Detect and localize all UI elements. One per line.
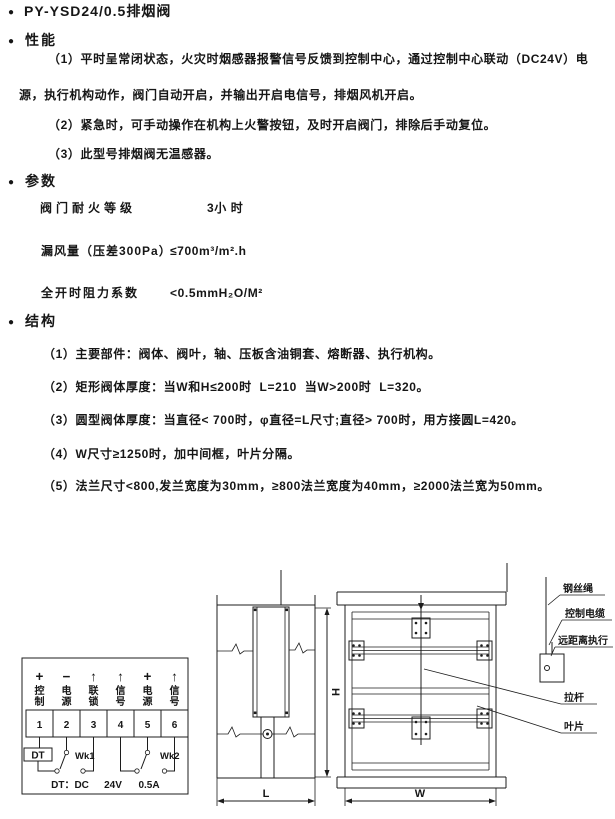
- terminal-number: 5: [145, 720, 151, 731]
- terminal-number: 2: [64, 720, 70, 731]
- blade-label: 叶片: [564, 720, 584, 733]
- param-value-resistance: <0.5mmH₂O/M²: [170, 287, 263, 300]
- wire-rope-label: 钢丝绳: [563, 582, 593, 595]
- param-value-fire-rating: 3小 时: [207, 202, 243, 215]
- dimension-h: H: [315, 608, 341, 777]
- bullet-icon: ●: [8, 8, 15, 19]
- terminal-symbol-6: ↑: [171, 669, 178, 684]
- product-title-line: ●PY-YSD24/0.5排烟阀: [8, 4, 171, 19]
- terminal-label: 源: [143, 695, 153, 708]
- terminal-number: 1: [37, 720, 43, 731]
- wk1-label: Wk1: [75, 751, 95, 762]
- voltage-caption: 24V: [104, 780, 122, 791]
- terminal-symbol-2: −: [63, 669, 71, 684]
- side-view-diagram: H L: [217, 570, 341, 806]
- performance-heading: 性能: [25, 32, 57, 48]
- remote-actuator: [540, 577, 564, 682]
- parameters-heading: 参数: [25, 173, 57, 189]
- structure-item-3: （3）圆型阀体厚度：当直径< 700时，φ直径=L尺寸;直径> 700时，用方接…: [43, 414, 524, 427]
- terminal-number: 4: [118, 720, 124, 731]
- terminal-number: 6: [172, 720, 178, 731]
- wiring-terminal-diagram: + − ↑ ↑ + ↑ 控 制 电 源 联 锁 信 号 电 源 信 号: [22, 658, 188, 794]
- bullet-icon: ●: [8, 37, 16, 48]
- performance-item-2: （2）紧急时，可手动操作在机构上火警按钮，及时开启阀门，排除后手动复位。: [48, 119, 496, 132]
- structure-heading: 结构: [25, 313, 57, 329]
- structure-item-5: （5）法兰尺寸<800,发兰宽度为30mm，≥800法兰宽度为40mm，≥200…: [43, 480, 550, 493]
- bullet-icon: ●: [8, 318, 16, 329]
- bullet-icon: ●: [8, 178, 16, 189]
- terminal-label: 号: [116, 696, 126, 708]
- section-heading-parameters: ●参数: [8, 174, 57, 189]
- performance-item-3: （3）此型号排烟阀无温感器。: [48, 148, 219, 161]
- performance-item-1-line-2: 源，执行机构动作，阀门自动开启，并输出开启电信号，排烟风机开启。: [19, 89, 422, 102]
- terminal-label: 信: [116, 684, 126, 697]
- terminal-label: 电: [143, 684, 153, 697]
- structure-item-4: （4）W尺寸≥1250时，加中间框，叶片分隔。: [43, 448, 300, 461]
- structure-item-1: （1）主要部件：阀体、阀叶，轴、压板含油铜套、熔断器、执行机构。: [43, 348, 441, 361]
- param-label-fire-rating: 阀门耐火等级: [40, 202, 136, 215]
- param-value-leakage: ≤700m³/m².h: [170, 245, 247, 258]
- terminal-symbol-5: +: [144, 669, 152, 684]
- terminal-number: 3: [91, 720, 97, 731]
- param-label-resistance: 全开时阻力系数: [41, 287, 139, 300]
- dimension-l-label: L: [263, 788, 270, 800]
- pull-rod-label: 拉杆: [564, 691, 584, 704]
- terminal-symbol-4: ↑: [117, 669, 124, 684]
- terminal-label: 联: [89, 684, 99, 697]
- front-view-diagram: W: [337, 563, 507, 806]
- performance-item-1-line-1: （1）平时呈常闭状态，火灾时烟感器报警信号反馈到控制中心，通过控制中心联动（DC…: [48, 53, 588, 66]
- page-title: PY-YSD24/0.5排烟阀: [24, 3, 171, 19]
- dimension-w: W: [345, 788, 496, 806]
- structure-item-2: （2）矩形阀体厚度：当W和H≤200时 L=210 当W>200时 L=320。: [43, 381, 429, 394]
- technical-drawings: + − ↑ ↑ + ↑ 控 制 电 源 联 锁 信 号 电 源 信 号: [0, 560, 615, 819]
- terminal-strip: 1 2 3 4 5 6: [26, 710, 188, 737]
- section-heading-structure: ●结构: [8, 314, 57, 329]
- wiring-circuit: DT Wk1 Wk2 DT：DC 24V 0.5A: [24, 737, 180, 791]
- dimension-l: L: [217, 778, 315, 806]
- terminal-label: 控: [35, 684, 45, 697]
- terminal-function-labels: 控 制 电 源 联 锁 信 号 电 源 信 号: [35, 684, 180, 708]
- section-heading-performance: ●性能: [8, 33, 57, 48]
- dimension-h-label: H: [329, 688, 341, 696]
- terminal-symbol-3: ↑: [90, 669, 97, 684]
- current-caption: 0.5A: [138, 780, 159, 791]
- dt-box-label: DT: [31, 751, 44, 762]
- remote-actuator-label: 远距离执行: [558, 634, 608, 647]
- terminal-label: 信: [170, 684, 180, 697]
- terminal-symbol-1: +: [36, 669, 44, 684]
- terminal-label: 号: [170, 696, 180, 708]
- dimension-w-label: W: [415, 788, 426, 800]
- terminal-label: 电: [62, 684, 72, 697]
- terminal-label: 源: [62, 695, 72, 708]
- control-cable-label: 控制电缆: [565, 607, 605, 620]
- wk2-label: Wk2: [160, 751, 180, 762]
- dt-dc-caption: DT：DC: [51, 780, 89, 791]
- terminal-label: 制: [35, 695, 45, 708]
- terminal-label: 锁: [89, 695, 99, 708]
- param-label-leakage: 漏风量（压差300Pa）: [41, 245, 172, 258]
